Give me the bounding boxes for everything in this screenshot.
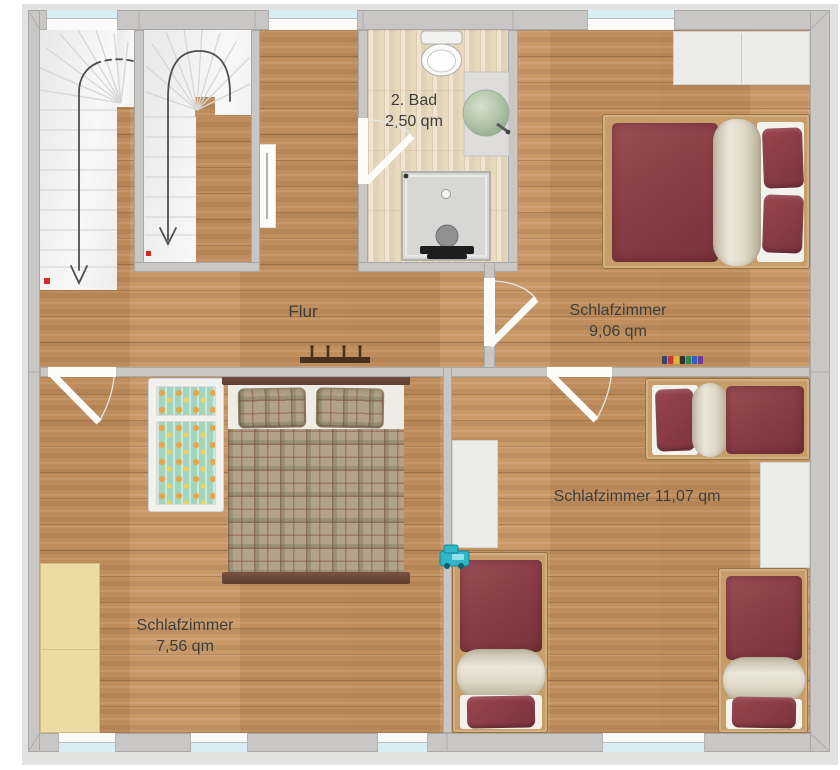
bed-blanket — [460, 560, 542, 652]
staircase-left-fan[interactable] — [117, 30, 134, 107]
staircase-left[interactable] — [40, 30, 117, 290]
window-bottom-3[interactable] — [377, 733, 428, 752]
bathroom-floor — [368, 30, 508, 262]
room-name: Schlafzimmer 11,07 qm — [532, 486, 742, 507]
room-name: 2. Bad — [354, 90, 474, 111]
room-area: 7,56 qm — [115, 636, 255, 657]
room-name: Flur — [273, 301, 333, 323]
bed-pillow — [316, 387, 385, 428]
wall-outer-face — [22, 752, 838, 765]
wall-stairwell-bottom — [134, 262, 260, 272]
dresser-bedroom11[interactable] — [760, 462, 810, 568]
door-panel[interactable] — [259, 144, 276, 228]
room-name: Schlafzimmer — [548, 300, 688, 321]
room-area: 2,50 qm — [354, 111, 474, 132]
room-label-bedroom9: Schlafzimmer 9,06 qm — [548, 300, 688, 342]
outer-wall-left — [28, 10, 40, 752]
bed-duvet-roll — [692, 383, 728, 457]
bed-pillow — [655, 388, 695, 451]
outer-wall-bottom — [28, 733, 830, 752]
room-label-bedroom7: Schlafzimmer 7,56 qm — [115, 615, 255, 657]
wardrobe-seam — [741, 33, 742, 83]
bed-blanket — [726, 576, 802, 660]
window-top-1[interactable] — [46, 10, 118, 30]
wardrobe-bedroom9[interactable] — [673, 31, 810, 85]
wall-stairwell-left — [134, 30, 144, 272]
wardrobe-seam — [42, 649, 98, 650]
double-bed-bedroom9[interactable] — [602, 114, 810, 269]
wall-bathroom-right — [508, 30, 518, 272]
bed-pillow — [762, 127, 804, 188]
stair-marker-right — [146, 251, 151, 256]
single-bed-top-bedroom11[interactable] — [645, 378, 810, 460]
stairwell-floor-tab — [195, 97, 215, 117]
wardrobe-bedroom11[interactable] — [452, 440, 498, 548]
bed-blanket — [228, 429, 404, 575]
child-bed-bedroom7[interactable] — [148, 378, 224, 512]
child-bed-pillow — [156, 386, 216, 416]
bed-pillow — [762, 194, 804, 253]
outer-wall-right — [810, 10, 830, 752]
bed-blanket — [612, 123, 718, 262]
bed-duvet-roll — [457, 649, 545, 699]
room-label-bedroom11: Schlafzimmer 11,07 qm — [532, 486, 742, 507]
single-bed-left-bedroom11[interactable] — [452, 552, 548, 733]
bed-duvet-roll — [713, 119, 761, 266]
window-bottom-4[interactable] — [602, 733, 705, 752]
window-top-3[interactable] — [587, 10, 675, 30]
wall-middle-horizontal — [40, 367, 810, 377]
door-opening-bedroom7[interactable] — [48, 367, 116, 377]
door-panel-line — [266, 153, 268, 219]
floor-plan: 2. Bad 2,50 qm Flur Schlafzimmer 9,06 qm… — [0, 0, 840, 770]
window-top-2[interactable] — [268, 10, 358, 30]
wall-stairwell-right — [251, 30, 260, 272]
bed-blanket — [726, 386, 804, 454]
bed-pillow — [238, 387, 307, 428]
outer-wall-top — [28, 10, 830, 30]
window-bottom-1[interactable] — [58, 733, 116, 752]
room-name: Schlafzimmer — [115, 615, 255, 636]
child-bed-duvet — [156, 421, 216, 505]
window-bottom-2[interactable] — [190, 733, 248, 752]
room-label-bathroom: 2. Bad 2,50 qm — [354, 90, 474, 132]
plaid-bed-footboard — [222, 572, 410, 584]
stair-marker-left — [44, 278, 50, 284]
door-opening-bedroom9[interactable] — [484, 278, 495, 346]
double-bed-plaid[interactable] — [228, 385, 404, 575]
single-bed-right-bedroom11[interactable] — [718, 568, 808, 733]
wall-bedrooms-divider — [443, 367, 452, 733]
door-opening-bedroom11[interactable] — [547, 367, 612, 377]
room-label-hall: Flur — [273, 301, 333, 323]
wall-outer-face — [830, 4, 838, 765]
wardrobe-bedroom7[interactable] — [40, 563, 100, 733]
bed-pillow — [467, 695, 536, 728]
room-area: 9,06 qm — [548, 321, 688, 342]
stairwell-floor-patch — [196, 115, 251, 262]
bed-pillow — [732, 696, 797, 728]
